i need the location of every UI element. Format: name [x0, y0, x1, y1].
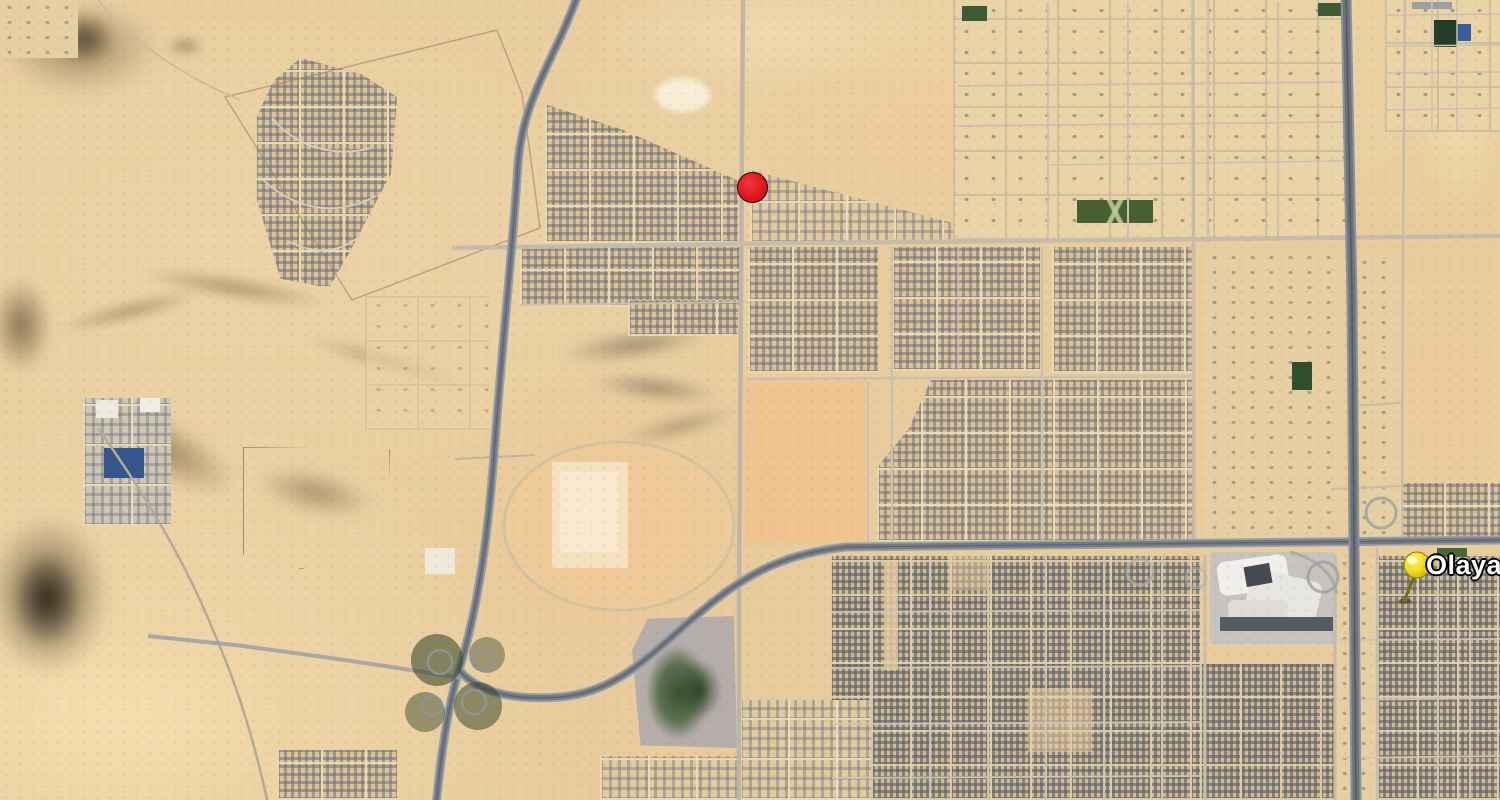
ramp-loop: [1186, 568, 1206, 588]
track-road: [95, 0, 240, 100]
street: [1402, 0, 1405, 545]
community-street: [272, 118, 372, 151]
horizontal-arterial-road: [452, 236, 1500, 248]
roads-layer: [0, 0, 1500, 800]
highway-west: [436, 0, 578, 800]
cloverleaf-vegetation: [454, 682, 502, 730]
olaya-place-label[interactable]: Olaya: [1426, 550, 1500, 581]
interchange-loop: [1366, 498, 1396, 528]
community-street: [290, 232, 364, 250]
red-dot-icon[interactable]: [737, 172, 768, 203]
construction-ring-road: [504, 442, 734, 610]
collector-road: [1193, 0, 1194, 545]
ramp-loop: [1127, 559, 1153, 585]
frontage-road: [98, 428, 268, 800]
satellite-map-canvas[interactable]: Olaya: [0, 0, 1500, 800]
enclosure-wall: [225, 30, 540, 300]
street: [1332, 486, 1402, 489]
vertical-arterial-road: [739, 0, 743, 800]
cloverleaf-vegetation: [411, 634, 463, 686]
street: [520, 302, 745, 305]
